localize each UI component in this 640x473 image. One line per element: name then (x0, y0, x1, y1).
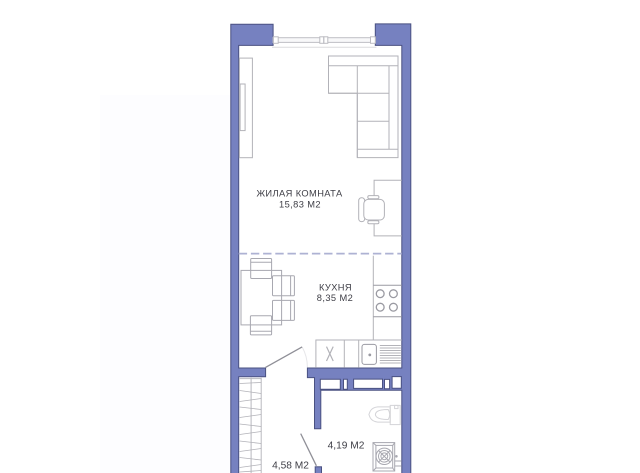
svg-text:ЖИЛАЯ КОМНАТА: ЖИЛАЯ КОМНАТА (256, 189, 343, 199)
svg-text:8,35 М2: 8,35 М2 (317, 293, 353, 303)
svg-text:КУХНЯ: КУХНЯ (319, 282, 352, 292)
svg-text:4,58 М2: 4,58 М2 (272, 461, 309, 472)
svg-text:15,83 М2: 15,83 М2 (279, 199, 321, 209)
svg-text:4,19 М2: 4,19 М2 (328, 441, 365, 452)
